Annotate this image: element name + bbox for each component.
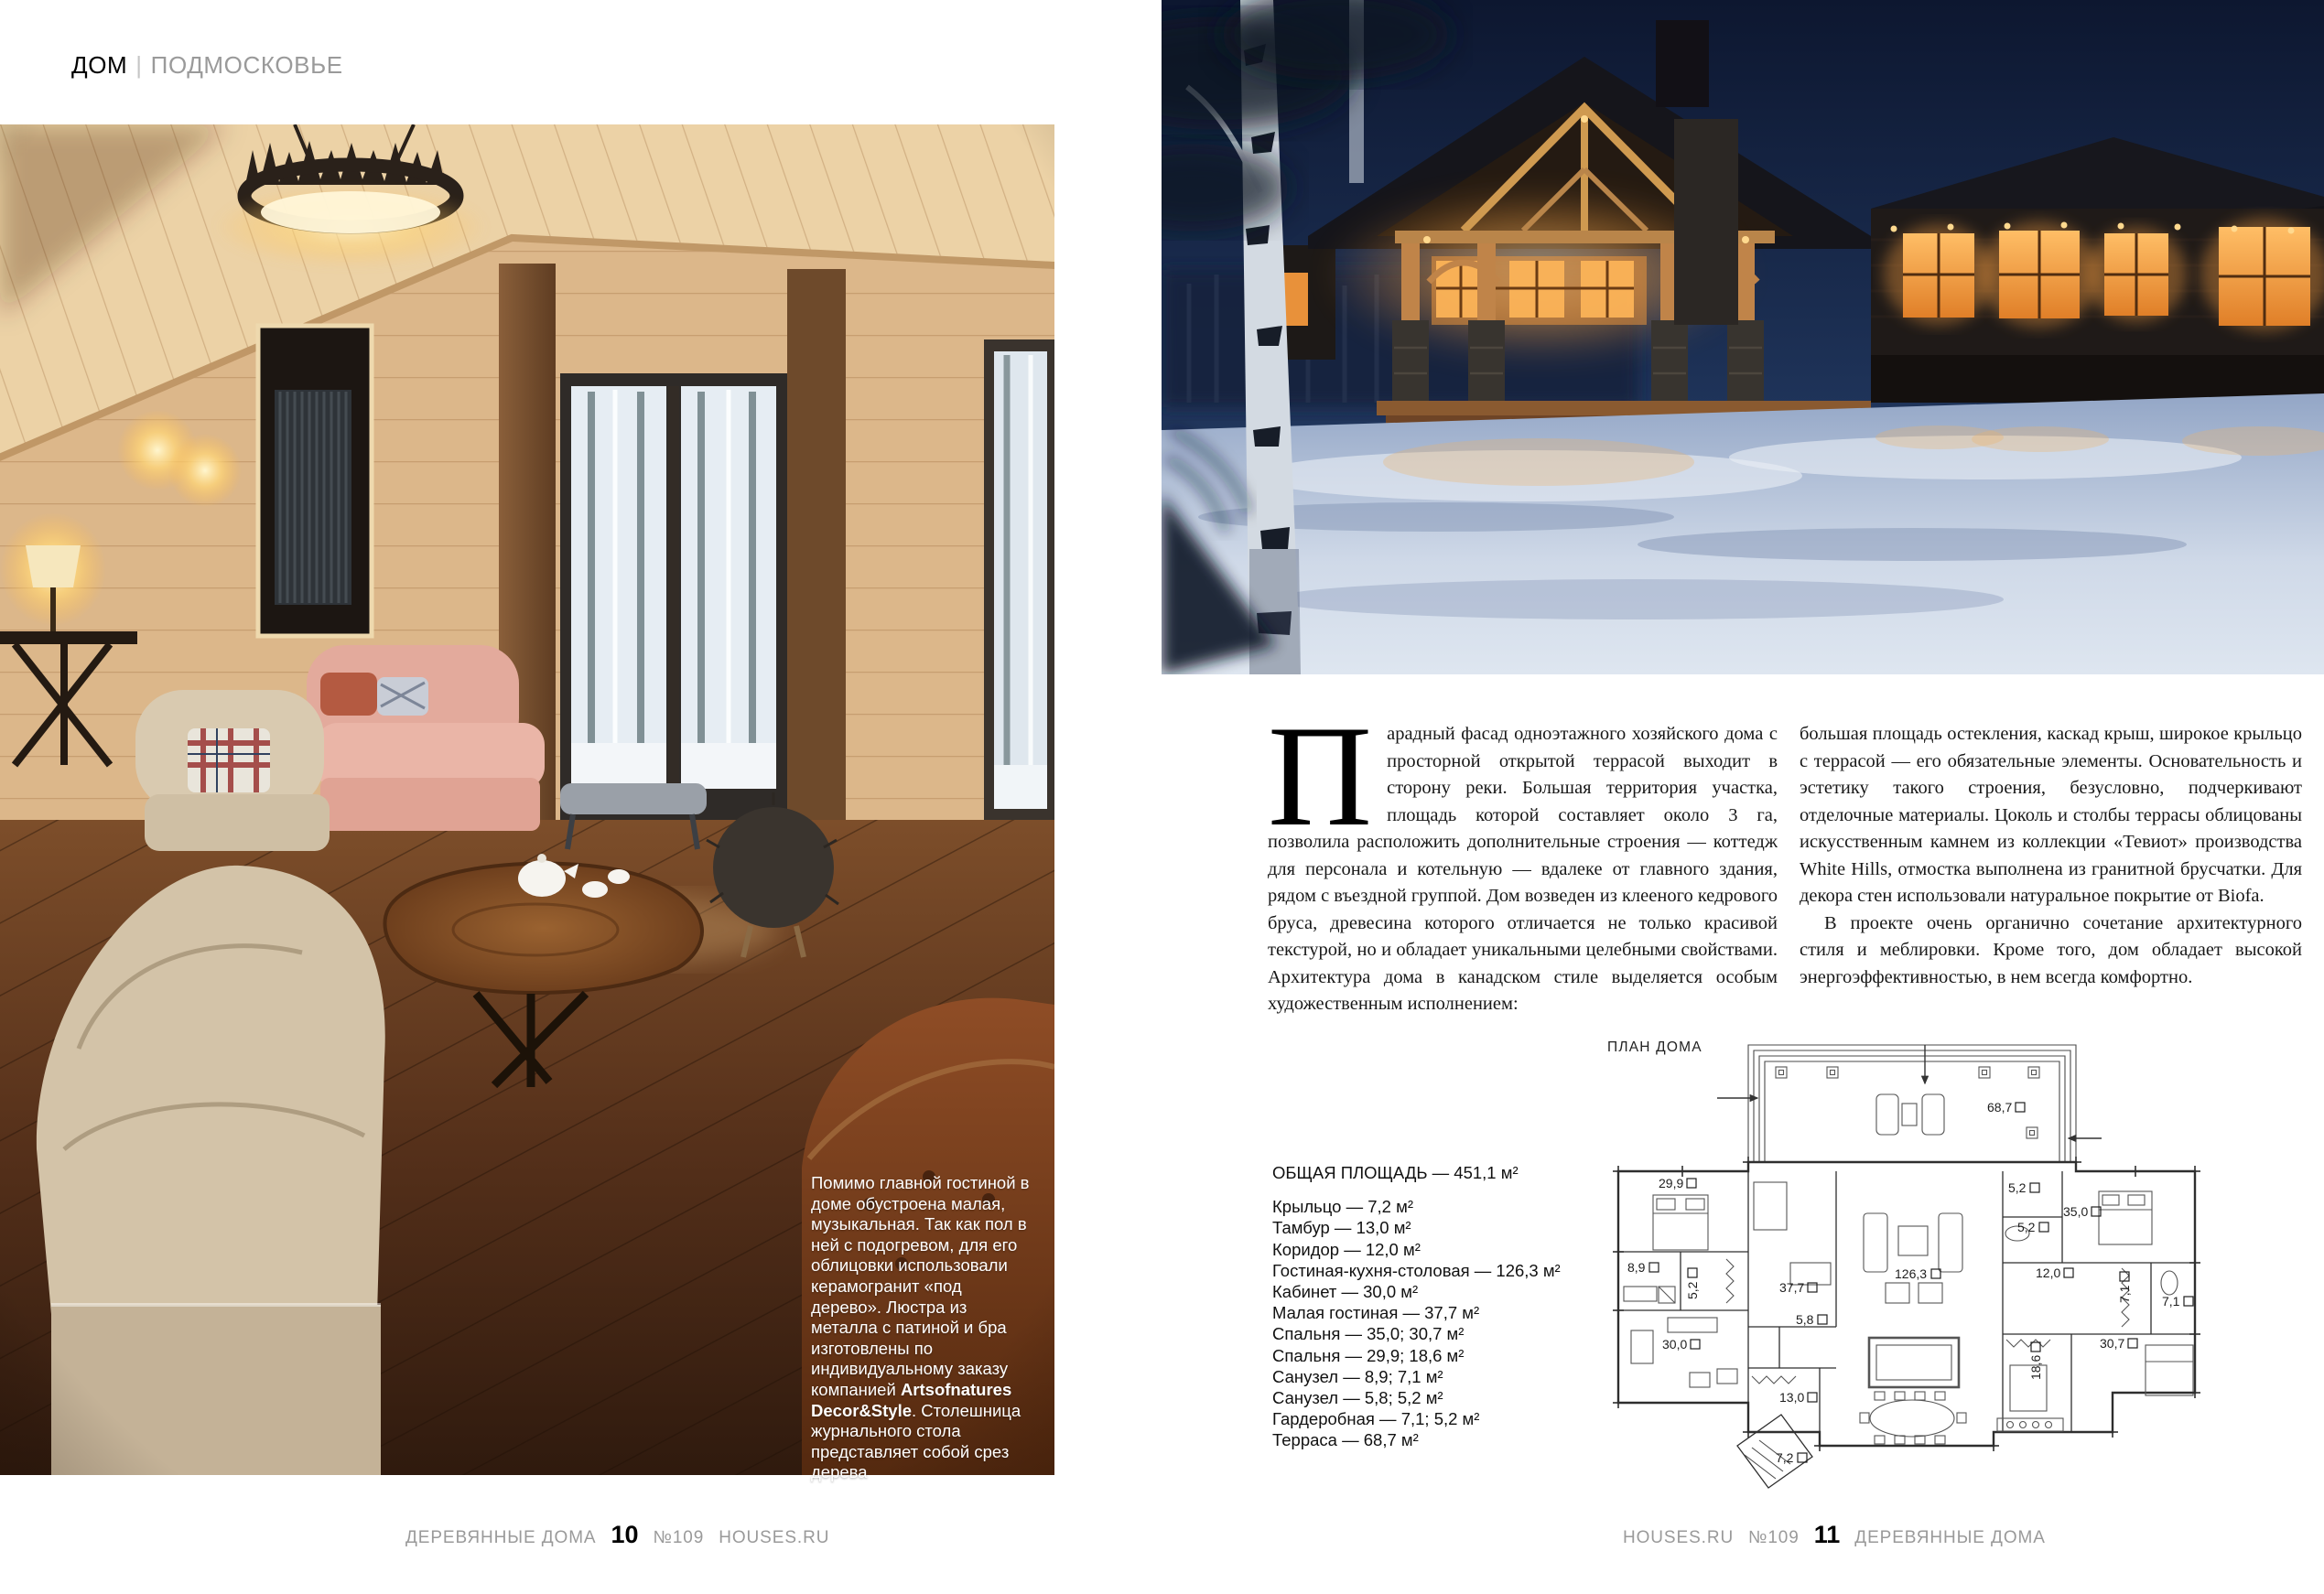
svg-text:8,9: 8,9: [1627, 1260, 1646, 1275]
plan-room-label: 29,9: [1659, 1176, 1696, 1190]
plan-room-label: 12,0: [2036, 1266, 2073, 1280]
article-column-2: большая площадь остекления, каскад крыш,…: [1800, 721, 2302, 991]
plan-terrace: [1717, 1045, 2102, 1162]
footer-issue: №109: [654, 1528, 705, 1548]
footer-magazine: ДЕРЕВЯННЫЕ ДОМА: [405, 1528, 597, 1548]
area-item: Терраса — 68,7 м²: [1272, 1429, 1561, 1450]
page-number: 11: [1814, 1521, 1841, 1549]
plan-room-label: 30,0: [1662, 1337, 1700, 1352]
plan-room-label: 7,2: [1776, 1450, 1807, 1465]
header-separator: |: [135, 51, 142, 79]
area-item: Малая гостиная — 37,7 м²: [1272, 1302, 1561, 1323]
footer-right: HOUSES.RU №109 11 ДЕРЕВЯННЫЕ ДОМА: [1623, 1521, 2046, 1549]
svg-text:37,7: 37,7: [1779, 1280, 1804, 1295]
svg-text:29,9: 29,9: [1659, 1176, 1683, 1190]
footer-site: HOUSES.RU: [719, 1528, 829, 1548]
svg-text:13,0: 13,0: [1779, 1390, 1804, 1405]
plan-room-label: 13,0: [1779, 1390, 1817, 1405]
plan-room-label: 35,0: [2063, 1204, 2101, 1219]
areas-title: ОБЩАЯ ПЛОЩАДЬ — 451,1 м²: [1272, 1162, 1561, 1183]
footer-left: ДЕРЕВЯННЫЕ ДОМА 10 №109 HOUSES.RU: [405, 1521, 829, 1549]
area-item: Тамбур — 13,0 м²: [1272, 1217, 1561, 1238]
plan-room-label: 5,2: [1685, 1268, 1700, 1299]
plan-room-label: 68,7: [1987, 1100, 2025, 1115]
svg-text:5,2: 5,2: [2017, 1220, 2036, 1234]
plan-furniture: [1624, 1182, 2193, 1444]
article-paragraph-2: большая площадь остекления, каскад крыш,…: [1800, 721, 2302, 910]
snow-ground: [1162, 393, 2324, 674]
areas-list: ОБЩАЯ ПЛОЩАДЬ — 451,1 м² Крыльцо — 7,2 м…: [1272, 1162, 1561, 1451]
footer-issue: №109: [1748, 1528, 1800, 1548]
svg-text:68,7: 68,7: [1987, 1100, 2012, 1115]
area-item: Гостиная-кухня-столовая — 126,3 м²: [1272, 1260, 1561, 1281]
footer-magazine: ДЕРЕВЯННЫЕ ДОМА: [1854, 1528, 2046, 1548]
page-header: ДОМ|ПОДМОСКОВЬЕ: [71, 51, 343, 80]
header-region: ПОДМОСКОВЬЕ: [151, 51, 343, 79]
svg-text:12,0: 12,0: [2036, 1266, 2060, 1280]
plan-room-label: 7,1: [2162, 1294, 2193, 1309]
plan-room-label: 8,9: [1627, 1260, 1659, 1275]
areas-items: Крыльцо — 7,2 м² Тамбур — 13,0 м² Коридо…: [1272, 1196, 1561, 1450]
svg-text:30,7: 30,7: [2100, 1336, 2124, 1351]
area-item: Гардеробная — 7,1; 5,2 м²: [1272, 1408, 1561, 1429]
floor-plan: 68,7 29,9 5,2 35,0 5,2 8,9 5,2 37,7 126,…: [1600, 1043, 2213, 1492]
footer-site: HOUSES.RU: [1623, 1528, 1734, 1548]
plan-room-label: 5,2: [2008, 1180, 2039, 1195]
header-section: ДОМ: [71, 51, 127, 79]
photo-caption: Помимо главной гостиной в доме обустроен…: [811, 1173, 1031, 1483]
svg-text:5,2: 5,2: [1685, 1281, 1700, 1299]
svg-text:7,1: 7,1: [2162, 1294, 2180, 1309]
plan-room-label: 30,7: [2100, 1336, 2137, 1351]
plan-room-label: 126,3: [1895, 1266, 1940, 1281]
plan-room-labels: 68,7 29,9 5,2 35,0 5,2 8,9 5,2 37,7 126,…: [1627, 1100, 2193, 1465]
area-item: Спальня — 35,0; 30,7 м²: [1272, 1323, 1561, 1344]
plan-interior-walls: [1618, 1171, 2195, 1446]
svg-text:30,0: 30,0: [1662, 1337, 1687, 1352]
area-item: Санузел — 8,9; 7,1 м²: [1272, 1366, 1561, 1387]
page-number: 10: [611, 1521, 639, 1549]
plan-room-label: 5,2: [2017, 1220, 2048, 1234]
plan-room-label: 18,6: [2028, 1342, 2043, 1380]
svg-text:35,0: 35,0: [2063, 1204, 2088, 1219]
exterior-photo-illustration: [1162, 0, 2324, 674]
area-item: Спальня — 29,9; 18,6 м²: [1272, 1345, 1561, 1366]
svg-text:5,8: 5,8: [1796, 1312, 1814, 1327]
article-paragraph-3: В проекте очень органично сочетание архи…: [1800, 910, 2302, 992]
area-item: Коридор — 12,0 м²: [1272, 1239, 1561, 1260]
svg-text:5,2: 5,2: [2008, 1180, 2027, 1195]
interior-photo: Помимо главной гостиной в доме обустроен…: [0, 124, 1054, 1475]
area-item: Санузел — 5,8; 5,2 м²: [1272, 1387, 1561, 1408]
svg-text:7,2: 7,2: [1776, 1450, 1794, 1465]
area-item: Крыльцо — 7,2 м²: [1272, 1196, 1561, 1217]
caption-text: Помимо главной гостиной в доме обустроен…: [811, 1173, 1030, 1399]
exterior-photo: [1162, 0, 2324, 674]
plan-room-label: 7,1: [2117, 1272, 2132, 1303]
plan-room-label: 37,7: [1779, 1280, 1817, 1295]
area-item: Кабинет — 30,0 м²: [1272, 1281, 1561, 1302]
article-column-1: Парадный фасад одноэтажного хозяйского д…: [1268, 721, 1778, 1018]
svg-text:18,6: 18,6: [2028, 1355, 2043, 1380]
article-paragraph-1: Парадный фасад одноэтажного хозяйского д…: [1268, 721, 1778, 1018]
svg-text:7,1: 7,1: [2117, 1285, 2132, 1303]
svg-text:126,3: 126,3: [1895, 1266, 1927, 1281]
drop-cap: П: [1268, 721, 1387, 828]
plan-room-label: 5,8: [1796, 1312, 1827, 1327]
